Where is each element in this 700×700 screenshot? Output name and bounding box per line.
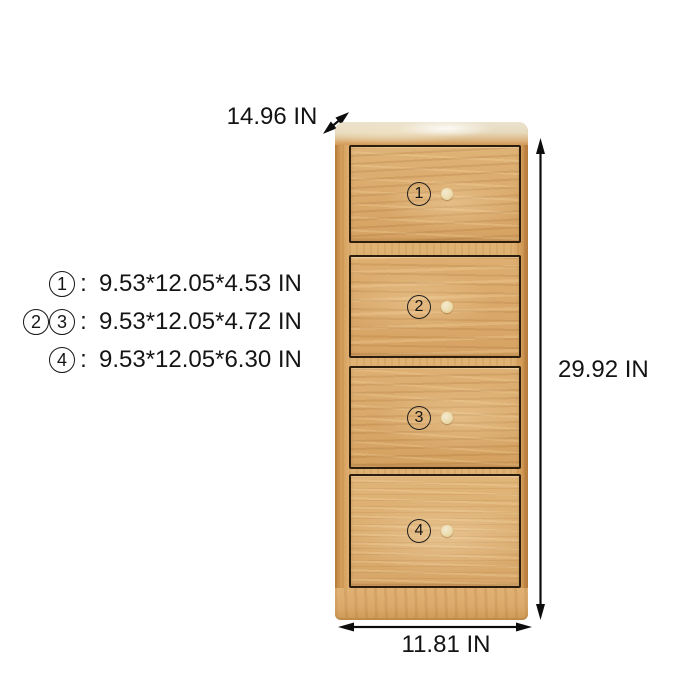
product-dimension-diagram: 1 : 9.53*12.05*4.53 IN 2 3 : 9.53*12.05*… <box>0 0 700 700</box>
circled-number-4: 4 <box>49 347 75 373</box>
height-dimension-label: 29.92 IN <box>558 356 649 384</box>
depth-dimension-label: 14.96 IN <box>226 103 318 131</box>
drawer-2-number-badge: 2 <box>407 295 431 319</box>
spec-list: 1 : 9.53*12.05*4.53 IN 2 3 : 9.53*12.05*… <box>22 265 302 379</box>
circled-number-2: 2 <box>23 309 49 335</box>
drawer-1-number-badge: 1 <box>407 182 431 206</box>
spec-row-1-dimensions: 9.53*12.05*4.53 IN <box>99 270 302 298</box>
spec-colon: : <box>77 270 90 298</box>
drawer-4-front: 4 <box>351 476 519 586</box>
height-arrow-icon <box>533 138 548 620</box>
drawer-1-front: 1 <box>351 147 519 241</box>
spec-row-drawer-4: 4 : 9.53*12.05*6.30 IN <box>22 341 302 379</box>
spec-row-3-label: 4 : <box>22 346 90 374</box>
spec-row-2-dimensions: 9.53*12.05*4.72 IN <box>99 308 302 336</box>
spec-colon: : <box>77 308 90 336</box>
spec-row-3-dimensions: 9.53*12.05*6.30 IN <box>99 346 302 374</box>
spec-row-drawer-1: 1 : 9.53*12.05*4.53 IN <box>22 265 302 303</box>
drawer-3-knob <box>441 412 453 424</box>
drawer-1-knob <box>441 188 453 200</box>
drawer-2: 2 <box>349 255 521 358</box>
circled-number-1: 1 <box>49 271 75 297</box>
cabinet-plinth <box>335 588 528 620</box>
cabinet: 1 2 3 4 <box>335 122 528 620</box>
spec-colon: : <box>77 346 90 374</box>
drawer-4-number-badge: 4 <box>407 519 431 543</box>
drawer-2-knob <box>441 301 453 313</box>
cabinet-top-surface <box>335 122 528 145</box>
circled-number-3: 3 <box>49 309 75 335</box>
spec-row-drawers-2-3: 2 3 : 9.53*12.05*4.72 IN <box>22 303 302 341</box>
spec-row-2-label: 2 3 : <box>22 308 90 336</box>
width-dimension-label: 11.81 IN <box>394 631 498 659</box>
drawer-3-number-badge: 3 <box>407 406 431 430</box>
drawer-3: 3 <box>349 366 521 469</box>
drawer-3-front: 3 <box>351 368 519 467</box>
drawer-4: 4 <box>349 474 521 588</box>
drawer-2-front: 2 <box>351 257 519 356</box>
spec-row-1-label: 1 : <box>22 270 90 298</box>
drawer-4-knob <box>441 525 453 537</box>
drawer-1: 1 <box>349 145 521 243</box>
